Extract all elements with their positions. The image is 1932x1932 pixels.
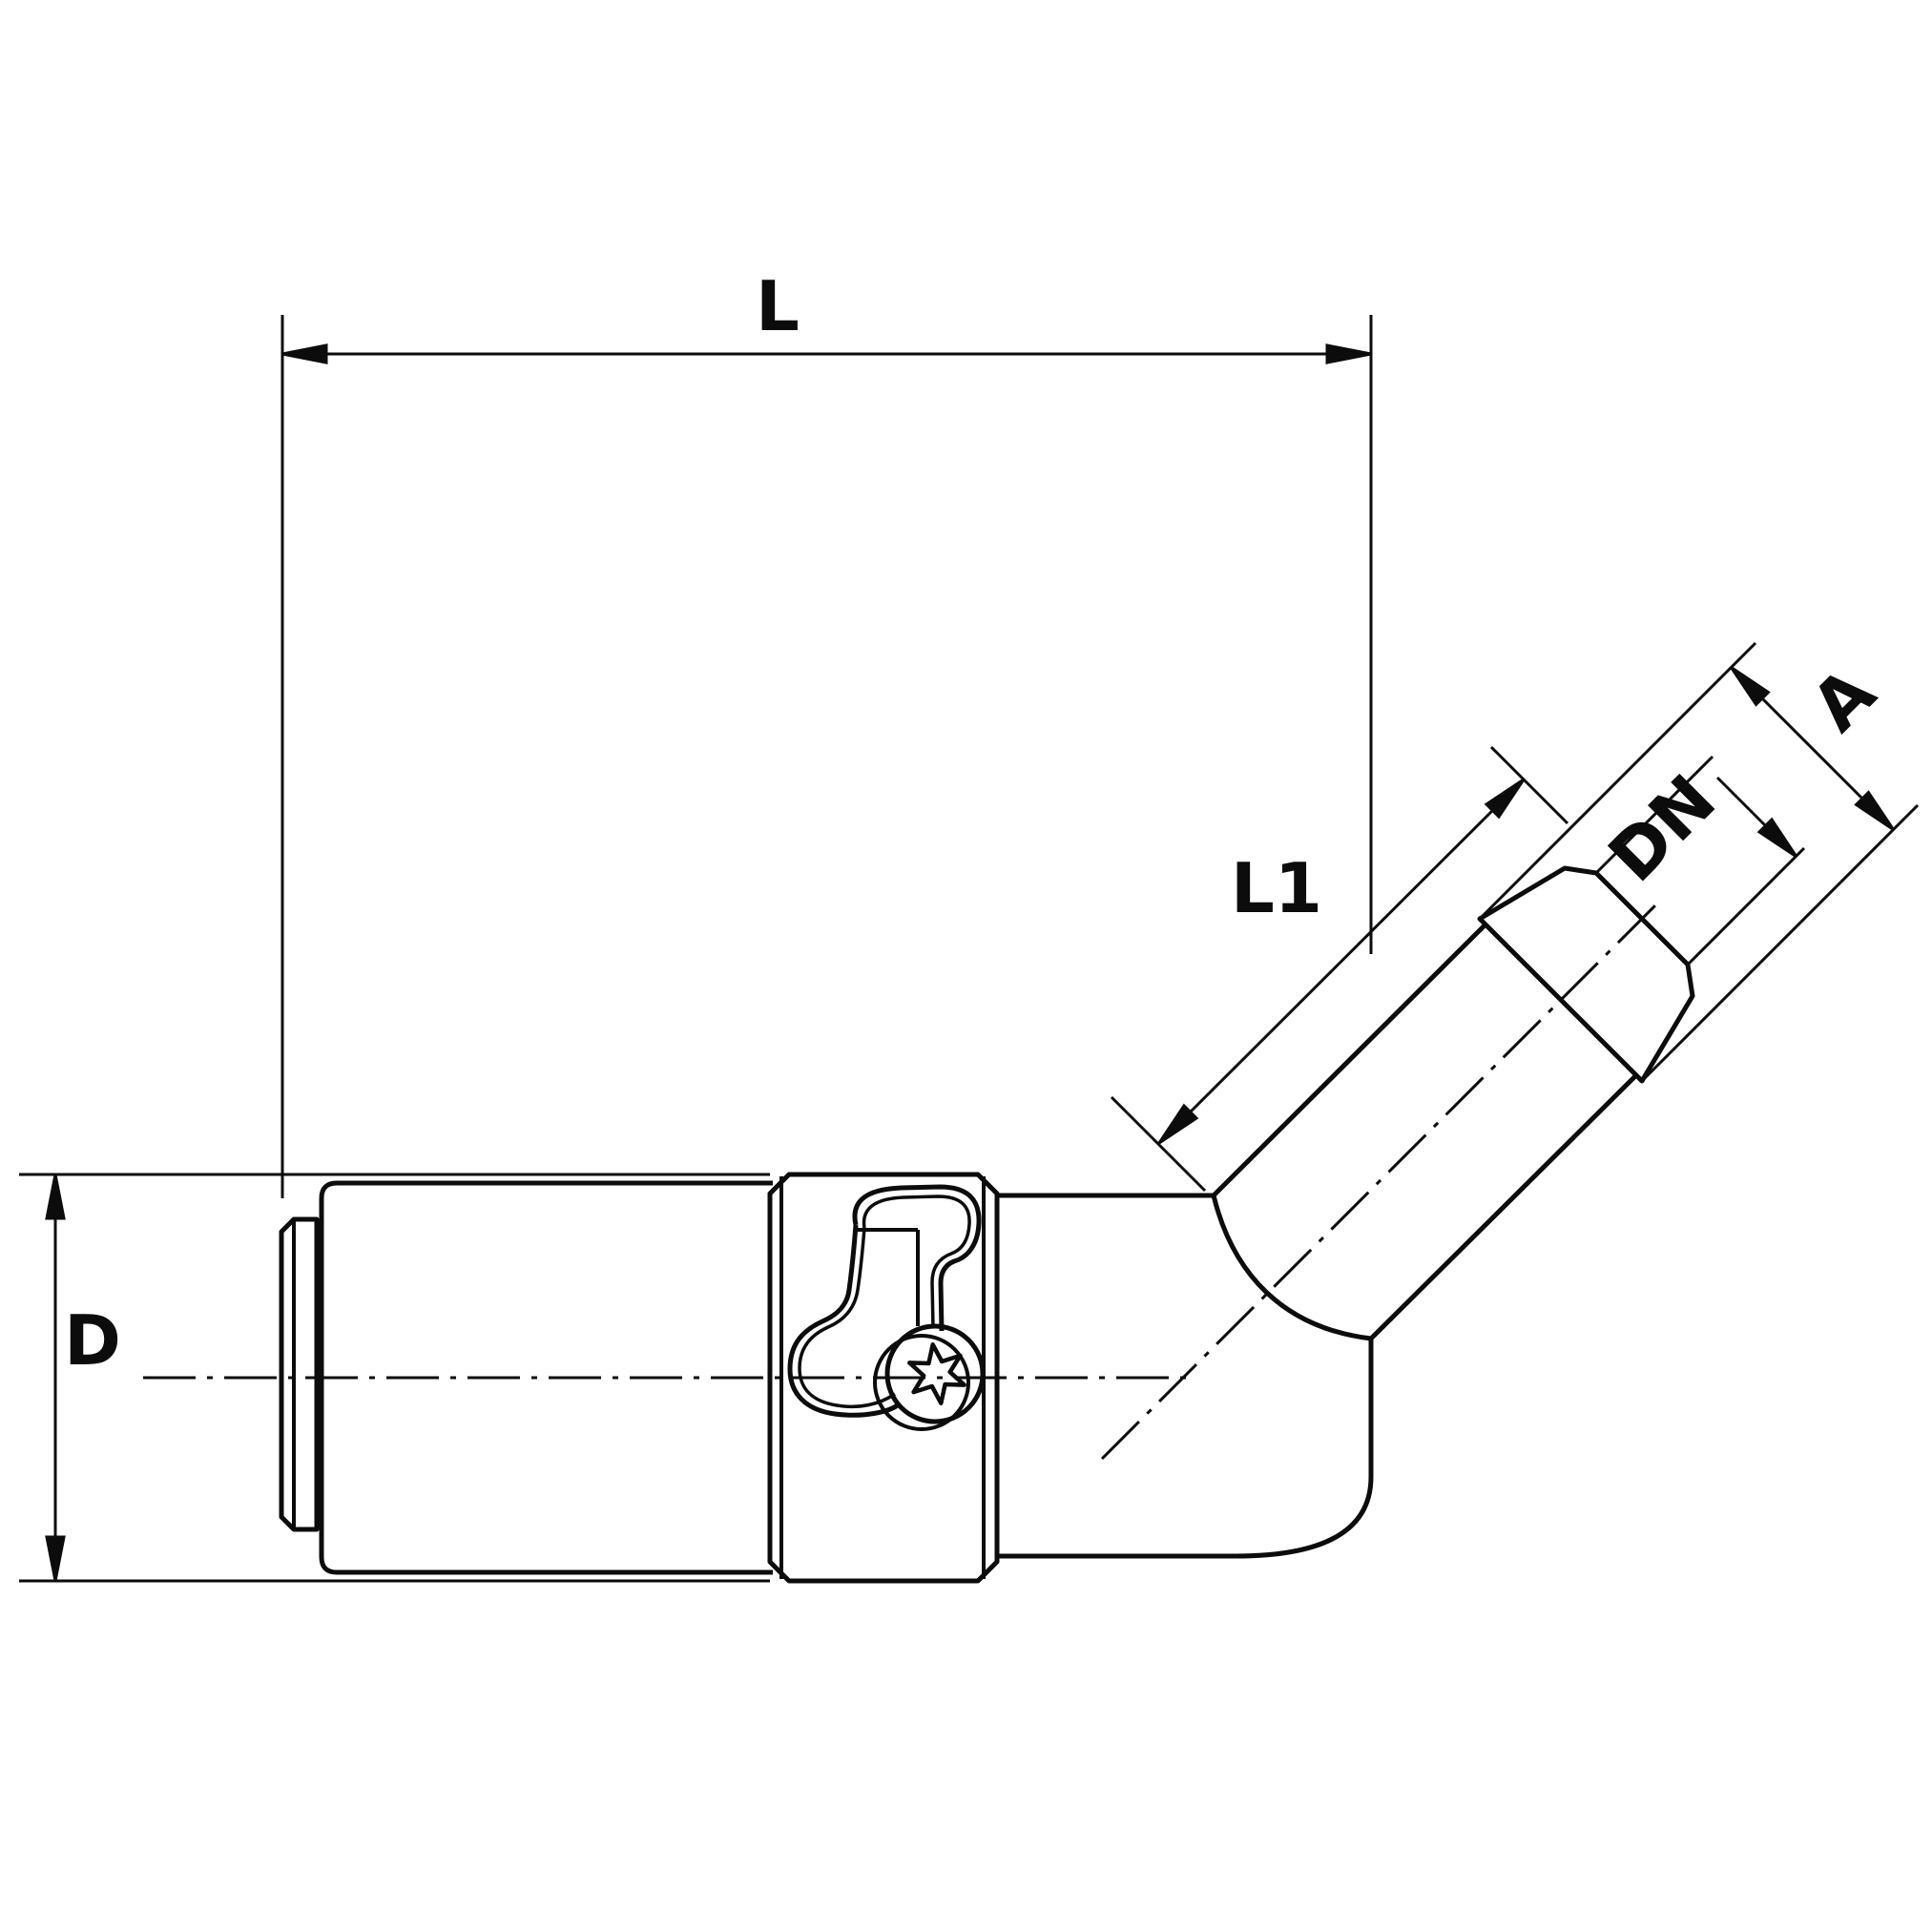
a-arrow-upper (1732, 668, 1769, 705)
l1-dim-line (1159, 779, 1524, 1143)
centerlines (143, 898, 1663, 1459)
outlet-neck-bottom-edge (997, 1339, 1371, 1556)
l-arrow-right (1327, 345, 1371, 363)
locking-lever (790, 1187, 979, 1415)
label-overall-length: L (756, 266, 800, 346)
gripper-ring (281, 1219, 317, 1529)
lever-stem (858, 1230, 918, 1326)
a-arrow-lower (1857, 793, 1894, 830)
dimension-l1 (1111, 747, 1568, 1191)
l-arrow-left (282, 345, 326, 363)
lever-boot-outer (790, 1225, 899, 1415)
branch-lower-edge (1371, 1075, 1636, 1339)
lever-boot-inner (800, 1228, 895, 1406)
label-branch-length: L1 (1231, 848, 1322, 928)
dn-ext-line-lower (1688, 848, 1804, 965)
l1-arrow-near (1159, 1106, 1196, 1143)
branch-upper-edge (1214, 924, 1485, 1195)
fitting-outline (281, 868, 1693, 1581)
dn-arrow (1759, 820, 1797, 857)
drawing-page: L D L1 A DN (0, 0, 1932, 1932)
gripper-ring-outline (281, 1219, 317, 1529)
technical-drawing: L D L1 A DN (0, 0, 1932, 1932)
l1-arrow-far (1486, 779, 1524, 817)
label-body-diameter: D (64, 1300, 121, 1381)
d-arrow-bottom (47, 1537, 64, 1581)
branch-centerline (1102, 898, 1663, 1459)
label-barb-outer-diameter: A (1797, 652, 1891, 746)
dimension-l (282, 315, 1371, 1198)
label-nominal-bore: DN (1593, 759, 1731, 897)
d-arrow-top (47, 1174, 64, 1218)
